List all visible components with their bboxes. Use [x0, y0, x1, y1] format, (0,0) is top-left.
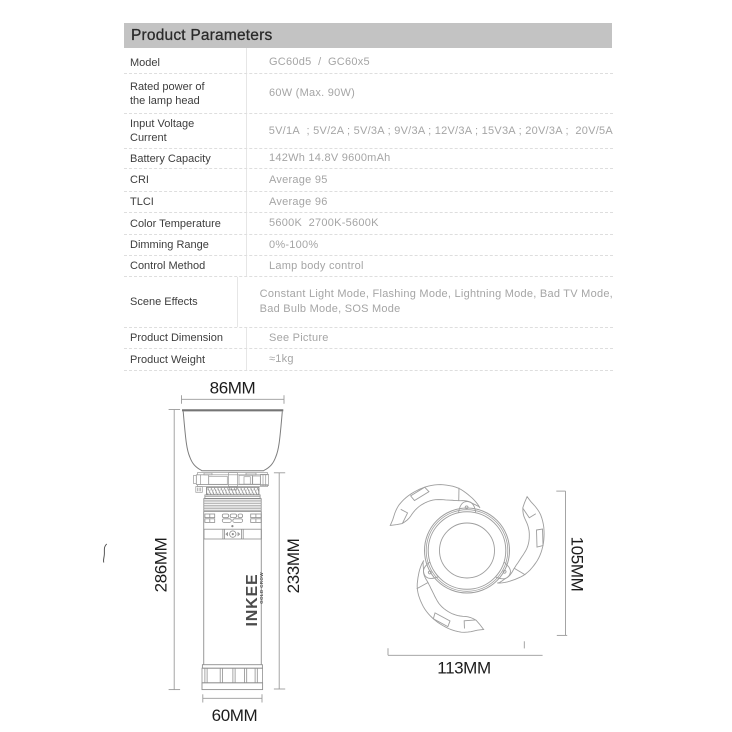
- svg-text:113MM: 113MM: [437, 659, 490, 678]
- svg-text:60MM: 60MM: [212, 706, 258, 725]
- svg-text:86MM: 86MM: [210, 379, 256, 398]
- svg-text:105MM: 105MM: [568, 537, 587, 592]
- svg-text:GOLD CROW: GOLD CROW: [259, 572, 264, 604]
- svg-text:233MM: 233MM: [284, 539, 303, 594]
- svg-text:286MM: 286MM: [152, 538, 171, 593]
